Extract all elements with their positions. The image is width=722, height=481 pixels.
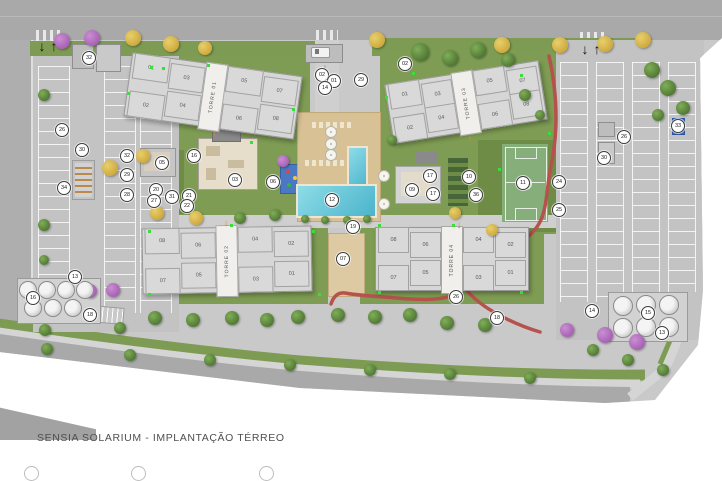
numbered-marker: 31 — [165, 190, 179, 204]
tree-yellow — [189, 211, 203, 225]
numbered-marker: 25 — [552, 203, 566, 217]
water-tank — [659, 295, 679, 315]
access-point-dot — [250, 141, 253, 144]
unit-cell: 05 — [472, 66, 507, 97]
unit-label: 02 — [142, 102, 149, 109]
tree-purple — [277, 155, 289, 167]
water-tank — [613, 318, 633, 338]
numbered-marker: 10 — [462, 170, 476, 184]
numbered-marker: 26 — [449, 290, 463, 304]
tree-yellow — [198, 41, 212, 55]
water-tank — [44, 299, 62, 317]
water-tank — [636, 317, 656, 337]
tree-green — [501, 53, 515, 67]
site-plan-page: { "title": { "text": "SENSIA SOLARIUM - … — [0, 0, 722, 475]
jogging-track-spur — [464, 287, 540, 332]
access-point-dot — [452, 224, 455, 227]
numbered-marker: 11 — [516, 176, 530, 190]
tree-green — [440, 316, 454, 330]
unit-cell: 01 — [387, 79, 422, 110]
site-plan-canvas: 0103050702040608TORRE 010103050702040608… — [0, 0, 722, 475]
tower-core: TORRE 02 — [215, 225, 238, 296]
tree-green — [124, 349, 136, 361]
legend-marker-stub — [131, 466, 146, 481]
unit-cell: 05 — [225, 66, 264, 97]
numbered-marker: 33 — [671, 119, 685, 133]
numbered-marker: 19 — [346, 220, 360, 234]
tower-building: 0806040207050301TORRE 02 — [141, 226, 312, 295]
numbered-marker: 28 — [120, 188, 134, 202]
numbered-marker: 29 — [354, 73, 368, 87]
numbered-marker: 17 — [426, 187, 440, 201]
access-point-dot — [312, 230, 315, 233]
tree-green — [284, 359, 296, 371]
unit-cell: 01 — [495, 260, 526, 286]
unit-label: 07 — [276, 88, 283, 95]
tree-purple — [106, 283, 120, 297]
unit-cell: 04 — [237, 226, 272, 253]
numbered-marker: 15 — [641, 306, 655, 320]
tree-green — [622, 354, 634, 366]
numbered-marker: 13 — [655, 326, 669, 340]
unit-cell: 06 — [477, 99, 512, 130]
unit-label: 01 — [401, 91, 408, 98]
tower-entry-arrow: ↑ — [468, 135, 473, 145]
tree-green — [269, 209, 281, 221]
unit-label: 06 — [422, 242, 428, 248]
tower-building: 0806040207050301TORRE 04 — [375, 227, 529, 291]
water-tank — [76, 281, 94, 299]
unit-cell: 04 — [424, 103, 459, 134]
numbered-marker: 30 — [597, 151, 611, 165]
tree-green — [39, 255, 49, 265]
unit-cell: 06 — [219, 103, 258, 134]
numbered-marker: 14 — [585, 304, 599, 318]
tower-core: TORRE 04 — [441, 226, 463, 295]
numbered-marker: 34 — [57, 181, 71, 195]
tree-green — [387, 135, 397, 145]
numbered-marker: 18 — [490, 311, 504, 325]
unit-cell: 04 — [163, 91, 202, 122]
tree-green — [657, 364, 669, 376]
tree-green — [363, 215, 371, 223]
pool-umbrella — [325, 149, 337, 161]
tree-green — [368, 310, 382, 324]
unit-label: 05 — [422, 270, 428, 276]
tree-green — [535, 110, 545, 120]
access-point-dot — [412, 72, 415, 75]
numbered-marker: 18 — [83, 308, 97, 322]
water-tank — [64, 299, 82, 317]
tree-green — [524, 372, 536, 384]
legend-marker-stub — [24, 466, 39, 481]
vehicle-entry-arrow: ↑ — [51, 39, 58, 53]
vehicle-entry-arrow: ↓ — [582, 42, 589, 56]
numbered-marker: 27 — [147, 194, 161, 208]
tree-green — [321, 216, 329, 224]
access-point-dot — [498, 168, 501, 171]
unit-cell: 02 — [495, 232, 526, 258]
tower-name-label: TORRE 03 — [461, 87, 472, 120]
numbered-marker: 13 — [68, 270, 82, 284]
tree-purple — [84, 30, 100, 46]
tree-green — [403, 308, 417, 322]
tree-yellow — [486, 224, 498, 236]
tree-green — [39, 324, 51, 336]
unit-cell: 02 — [126, 90, 165, 121]
unit-cell: 07 — [145, 268, 180, 295]
unit-label: 06 — [235, 115, 242, 122]
numbered-marker: 32 — [120, 149, 134, 163]
tree-green — [38, 89, 50, 101]
tower-entry-arrow: ↓ — [457, 221, 462, 231]
access-point-dot — [378, 291, 381, 294]
tree-green — [470, 42, 486, 58]
tree-green — [331, 308, 345, 322]
access-point-dot — [148, 230, 151, 233]
tree-green — [291, 310, 305, 324]
numbered-marker: 07 — [336, 252, 350, 266]
numbered-marker: 30 — [75, 143, 89, 157]
tower-name-label: TORRE 01 — [208, 81, 218, 114]
car — [311, 47, 330, 58]
tree-purple — [597, 327, 613, 343]
tree-yellow — [369, 32, 385, 48]
access-point-dot — [148, 293, 151, 296]
tree-green — [660, 80, 676, 96]
water-tank — [38, 281, 56, 299]
unit-label: 03 — [475, 275, 481, 281]
unit-cell: 08 — [256, 104, 295, 135]
pool-umbrella — [325, 126, 337, 138]
tree-green — [587, 344, 599, 356]
tree-yellow — [136, 149, 150, 163]
tree-yellow — [494, 37, 510, 53]
unit-label: 08 — [390, 237, 396, 243]
access-point-dot — [207, 64, 210, 67]
tree-yellow — [635, 32, 651, 48]
tower-entry-arrow: ↓ — [224, 219, 229, 229]
numbered-marker: 06 — [266, 175, 280, 189]
access-point-dot — [520, 291, 523, 294]
unit-label: 03 — [183, 75, 190, 82]
unit-cell: 07 — [260, 76, 299, 107]
unit-label: 06 — [195, 242, 201, 248]
unit-cell: 01 — [274, 261, 309, 288]
access-point-dot — [230, 224, 233, 227]
tree-green — [41, 343, 53, 355]
track-overlay — [0, 0, 722, 475]
tower-name-label: TORRE 02 — [224, 245, 231, 277]
tree-green — [652, 109, 664, 121]
access-point-dot — [318, 293, 321, 296]
unit-label: 08 — [272, 116, 279, 123]
pool-umbrella — [378, 170, 390, 182]
tree-green — [148, 311, 162, 325]
unit-cell: 03 — [167, 63, 206, 94]
tree-green — [204, 354, 216, 366]
tree-green — [644, 62, 660, 78]
plan-title: SENSIA SOLARIUM - IMPLANTAÇÃO TÉRREO — [37, 432, 285, 444]
numbered-marker: 22 — [180, 199, 194, 213]
unit-cell: 03 — [238, 266, 273, 293]
access-point-dot — [385, 96, 388, 99]
unit-label: 05 — [241, 78, 248, 85]
unit-label: 01 — [507, 270, 513, 276]
tree-green — [186, 313, 200, 327]
numbered-marker: 29 — [120, 168, 134, 182]
tree-yellow — [150, 206, 164, 220]
access-point-dot — [162, 67, 165, 70]
unit-cell: 05 — [410, 260, 441, 286]
unit-label: 08 — [159, 238, 165, 244]
unit-label: 02 — [288, 241, 294, 247]
tree-green — [676, 101, 690, 115]
tree-green — [442, 50, 458, 66]
car-windshield — [315, 49, 319, 54]
tree-green — [234, 212, 246, 224]
access-point-dot — [292, 108, 295, 111]
tower-entry-arrow: ↑ — [212, 129, 217, 139]
tree-green — [225, 311, 239, 325]
tree-green — [519, 89, 531, 101]
numbered-marker: 12 — [325, 193, 339, 207]
tree-yellow — [163, 36, 179, 52]
access-point-dot — [520, 74, 523, 77]
access-point-dot — [378, 224, 381, 227]
unit-label: 05 — [486, 78, 493, 85]
legend-marker-stub — [259, 466, 274, 481]
unit-label: 04 — [438, 115, 445, 122]
numbered-marker: 05 — [155, 156, 169, 170]
unit-cell: 02 — [274, 231, 309, 258]
access-point-dot — [150, 66, 153, 69]
unit-cell: 03 — [463, 265, 494, 291]
tree-green — [364, 364, 376, 376]
tree-yellow — [552, 37, 568, 53]
unit-label: 02 — [407, 125, 414, 132]
tree-green — [301, 215, 309, 223]
tree-green — [411, 43, 429, 61]
unit-label: 04 — [475, 237, 481, 243]
unit-cell: 05 — [181, 262, 216, 289]
unit-label: 02 — [507, 242, 513, 248]
tree-green — [260, 313, 274, 327]
tower-name-label: TORRE 04 — [449, 244, 455, 276]
numbered-marker: 32 — [82, 51, 96, 65]
unit-label: 04 — [179, 102, 186, 109]
vehicle-entry-arrow: ↑ — [594, 42, 601, 56]
access-point-dot — [548, 132, 551, 135]
unit-cell: 02 — [393, 113, 428, 144]
unit-label: 07 — [160, 278, 166, 284]
numbered-marker: 14 — [318, 81, 332, 95]
unit-label: 07 — [390, 275, 396, 281]
unit-label: 05 — [196, 272, 202, 278]
numbered-marker: 03 — [228, 173, 242, 187]
unit-label: 03 — [434, 91, 441, 98]
unit-cell: 08 — [378, 227, 409, 253]
unit-cell: 06 — [410, 232, 441, 258]
unit-label: 08 — [523, 101, 530, 108]
numbered-marker: 26 — [55, 123, 69, 137]
numbered-marker: 09 — [405, 183, 419, 197]
numbered-marker: 16 — [187, 149, 201, 163]
tree-green — [444, 368, 456, 380]
tree-yellow — [125, 30, 141, 46]
tree-green — [114, 322, 126, 334]
vehicle-entry-arrow: ↓ — [39, 39, 46, 53]
tree-green — [38, 219, 50, 231]
unit-cell: 07 — [378, 265, 409, 291]
pool-umbrella — [378, 198, 390, 210]
numbered-marker: 26 — [617, 130, 631, 144]
numbered-marker: 24 — [552, 175, 566, 189]
unit-label: 07 — [519, 77, 526, 84]
numbered-marker: 02 — [398, 57, 412, 71]
unit-label: 03 — [253, 276, 259, 282]
numbered-marker: 16 — [26, 291, 40, 305]
tree-purple — [560, 323, 574, 337]
unit-label: 06 — [492, 111, 499, 118]
tree-yellow — [102, 160, 118, 176]
access-point-dot — [127, 92, 130, 95]
numbered-marker: 17 — [423, 169, 437, 183]
unit-label: 01 — [289, 271, 295, 277]
numbered-marker: 36 — [469, 188, 483, 202]
unit-cell: 06 — [181, 232, 216, 259]
tree-yellow — [449, 207, 461, 219]
unit-label: 04 — [252, 236, 258, 242]
water-tank — [613, 296, 633, 316]
